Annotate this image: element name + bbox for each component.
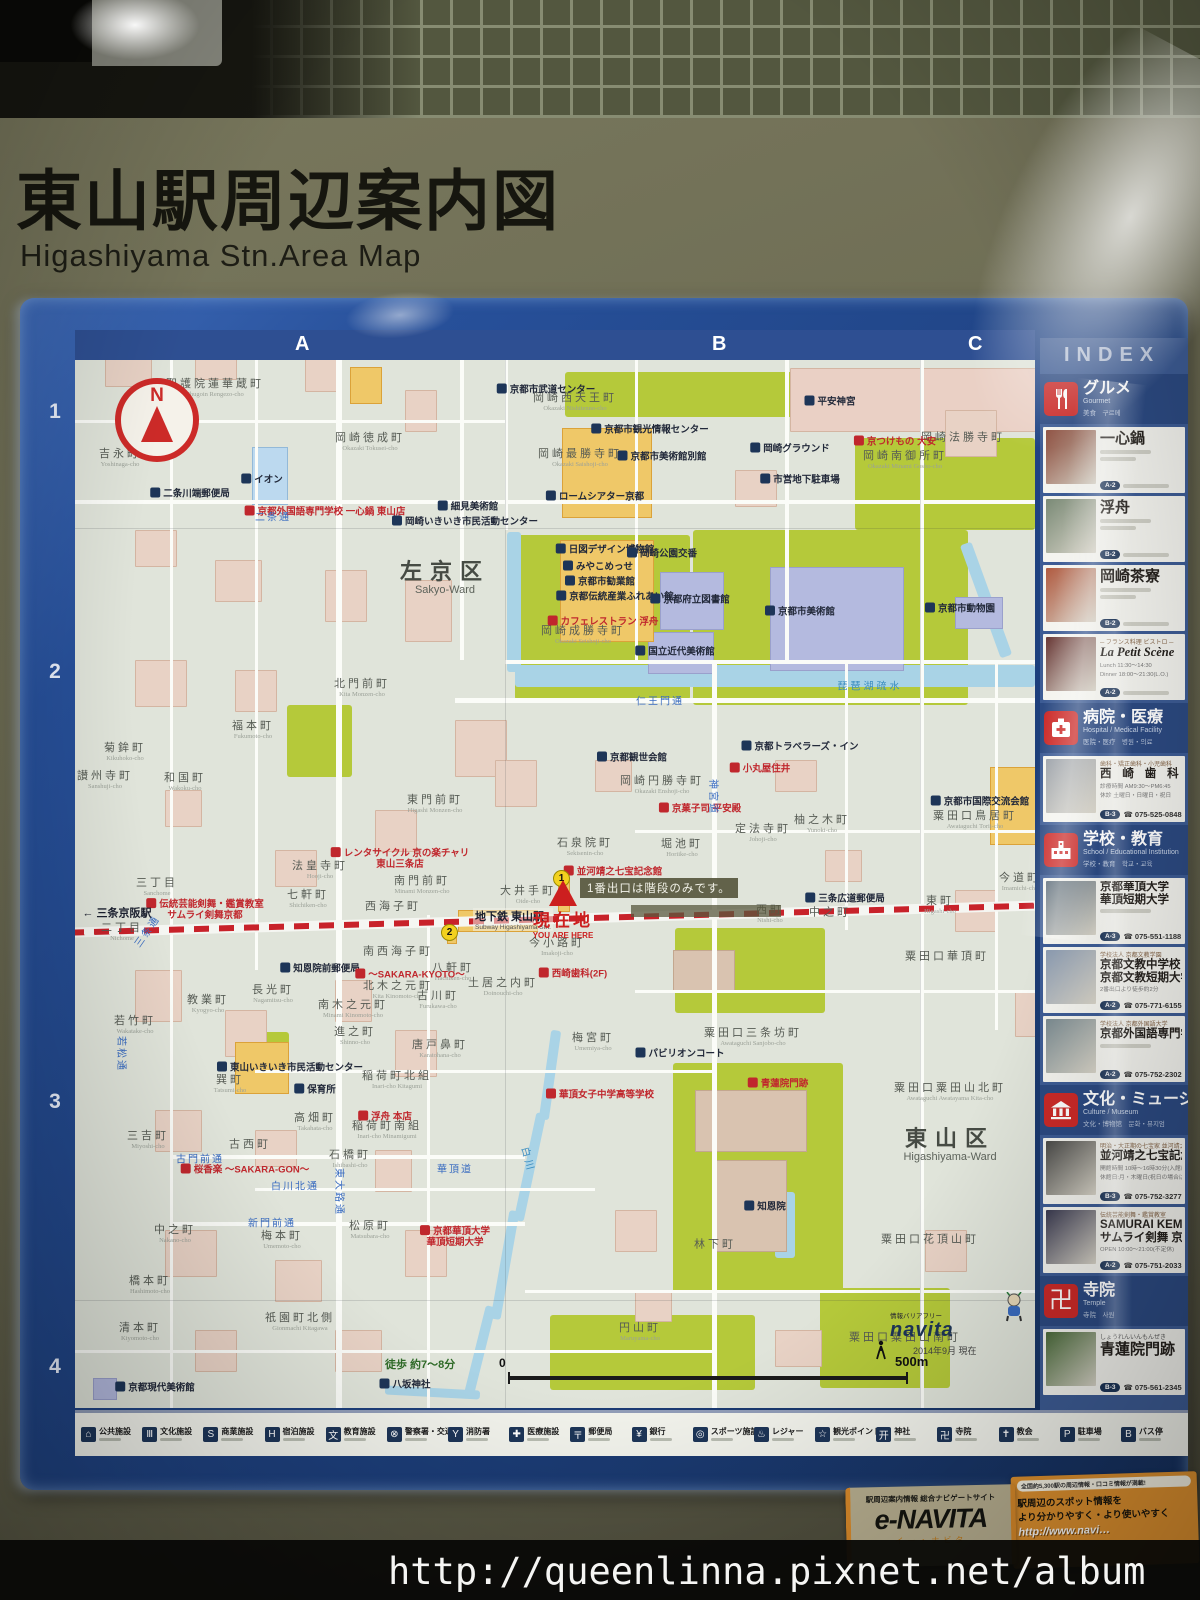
ad-photo [1046,759,1096,813]
town-label: 石泉院町Sekisenin-cho [557,837,613,857]
poi-marker-icon [805,893,815,903]
ad-detail-line: Lunch 11:30〜14:30 [1100,660,1182,669]
pedestrian-icon [875,1340,887,1365]
ad-card: 岡崎茶寮B-2 [1043,565,1185,631]
blurred-text-bar [1100,519,1151,523]
town-label: 中之町 [809,907,851,920]
poi-marker-icon [556,544,566,554]
poi-label: 三条広道郵便局 [805,893,885,906]
legend-item-lodging: H宿泊施設 [265,1427,326,1442]
legend-item-commercial-facility: S商業施設 [203,1427,264,1442]
poi-marker-icon [563,561,573,571]
town-label: 土居之内町Doinouchi-cho [468,977,538,997]
poi-label: 保育所 [294,1084,336,1097]
ad-phone: ☎ 075-771-6155 [1123,1001,1181,1010]
poi-marker-icon [294,1084,304,1094]
town-label: 古西町 [229,1139,271,1152]
lodging-icon: H [265,1427,280,1442]
town-label: 長光町Nagamitsu-cho [252,984,294,1004]
town-label: 今道町Imamichi-cho [999,872,1035,892]
blurred-text-bar [1100,595,1136,599]
watermark-band: http://queenlinna.pixnet.net/album [0,1540,1200,1600]
ad-title: 並河靖之七宝記念館 [1100,1150,1182,1163]
page-title-en: Higashiyama Stn.Area Map [20,238,421,274]
ad-label: 伝統芸能剣舞・鑑賞教室サムライ剣舞京都 [146,898,264,922]
ad-top-note: 学校法人 京都文教学園 [1100,950,1182,959]
ad-photo [1046,1141,1096,1195]
poi-label: パビリオンコート [635,1048,724,1061]
public-facility-icon: ⌂ [81,1427,96,1442]
town-label: 粟田口花頂山町 [881,1234,979,1247]
ad-label: 浮舟 本店 [358,1111,412,1124]
town-label: 清本町Kiyomoto-cho [119,1322,161,1342]
poi-label: 八坂神社 [379,1379,430,1392]
poi-label: 京都市美術館 [765,606,835,619]
street [505,660,1035,664]
ad-photo [1046,430,1096,484]
poi-marker-icon [744,1201,754,1211]
watermark-url: http://queenlinna.pixnet.net/album [388,1550,1145,1593]
street [460,330,464,660]
legend-item-sports-facility: ◎スポーツ施設 [693,1427,754,1442]
ad-photo [1046,1210,1096,1264]
town-label: 東町Higashi-cho [924,895,956,915]
grid-ref-badge: A-2 [1100,1001,1120,1010]
legend-label: 観光ポイント [833,1428,876,1437]
legend-label: 銀行 [650,1428,672,1437]
poi-marker-icon [556,591,566,601]
road-label: 華頂道 [437,1164,473,1176]
grid-line [75,1300,1035,1301]
water-label: 琵琶湖疏水 [838,681,903,693]
blurred-text-bar [1100,526,1136,530]
page-title: 東山駅周辺案内図 [16,148,560,244]
ad-photo [1046,499,1096,553]
compass-north-icon: N [115,378,199,462]
poi-marker-icon [635,646,645,656]
legend-label: 寺院 [955,1428,977,1437]
fork-knife-icon [1044,382,1078,416]
legend-label: 宿泊施設 [283,1428,315,1437]
grid-ref-badge: A-2 [1100,688,1120,697]
street [525,1290,1035,1293]
scale-start: 0 [499,1356,506,1370]
town-label: 梅本町Umemoto-cho [261,1230,303,1250]
town-label: 柚之木町Yunoki-cho [794,814,850,834]
ad-marker-icon [331,847,341,857]
town-label: 林下町 [694,1239,736,1252]
grid-ref-badge: B-2 [1100,550,1120,559]
legend-label: 医療施設 [527,1428,559,1437]
bld-area [275,1260,322,1302]
legend-item-leisure: ♨レジャー [754,1427,815,1442]
poi-label: 京都現代美術館 [115,1382,195,1395]
section-title: 学校・教育 [1083,832,1179,849]
poi-label: みやこめっせ [563,561,633,574]
poi-label: 市営地下駐車場 [760,474,840,487]
poi-label: 東山いきいき市民活動センター [217,1062,363,1075]
poi-label: 岡崎いきいき市民活動センター [392,516,538,529]
post-office-icon: 〒 [570,1427,585,1442]
poi-marker-icon [741,741,751,751]
town-label: 石橋町Ishibashi-cho [329,1149,371,1169]
ad-title: 青蓮院門跡 [1100,1341,1182,1358]
ad-phone: ☎ 075-525-0848 [1123,810,1181,819]
poi-label: 京都市美術館別館 [617,451,706,464]
poi-marker-icon [438,501,448,511]
legend-label: 警察署・交通 [405,1428,448,1437]
section-subtitle: 美食 구르메 [1083,407,1131,417]
bld-area [635,1290,672,1322]
town-label: 菊鉾町Kikuhoko-cho [104,742,146,762]
legend-item-post-office: 〒郵便局 [570,1427,631,1442]
water-area [539,1030,561,1121]
temple-icon: 卍 [937,1427,952,1442]
sticker-badge: 全国約5,300駅の周辺情報・口コミ情報が満載! [1017,1475,1191,1491]
town-label: 三丁目Sanchome [136,877,178,897]
poi-marker-icon [765,606,775,616]
grid-row-3: 3 [42,1090,68,1114]
legend-item-bus-stop: Bバス停 [1121,1427,1182,1442]
bld-area [375,810,417,852]
legend-label: 消防署 [466,1428,490,1437]
town-label: 南木之元町Minami Kinomoto-cho [318,999,388,1019]
index-section-temple: 卍寺院Temple寺院 사원 [1040,1276,1188,1326]
road-label: 若松通 [114,1036,126,1072]
blurred-text-bar [1100,1044,1151,1048]
ad-top-note: 学校法人 京都外国語大学 [1100,1019,1182,1028]
ad-marker-icon [358,1111,368,1121]
poi-label: 京都府立図書館 [650,594,730,607]
sightseeing-point-icon: ☆ [815,1427,830,1442]
lav-area [770,567,904,671]
bld-area [1015,990,1035,1037]
town-label: 粟田口鳥居町Awataguchi Torii-cho [933,810,1017,830]
navita-mascot-icon [1003,1292,1025,1327]
you-are-here-triangle [549,880,577,906]
legend-label: 神社 [894,1428,916,1437]
poi-label: 京都市観光情報センター [591,424,709,437]
poi-label: 京都観世会館 [597,752,667,765]
town-label: 堀池町Horiike-cho [661,838,703,858]
ad-card: しょうれんいんもんぜき青蓮院門跡B-3☎ 075-561-2345 [1043,1329,1185,1395]
legend-item-bank: ¥銀行 [632,1427,693,1442]
legend-label: バス停 [1139,1428,1163,1437]
fire-station-icon: Y [448,1427,463,1442]
road-label: 二条通 [255,512,291,524]
poi-marker-icon [591,424,601,434]
poi-marker-icon [760,474,770,484]
town-label: 若竹町Wakatake-cho [114,1015,156,1035]
grid-ref-badge: A-2 [1100,481,1120,490]
town-label: 粟田口華頂町 [905,951,989,964]
town-label: 橋本町Hashimoto-cho [129,1275,171,1295]
commercial-facility-icon: S [203,1427,218,1442]
grid-col-A: A [295,333,309,356]
ad-label: 並河靖之七宝記念館 [564,866,663,879]
ylw-area [562,428,652,518]
ad-top-note: 歯科・矯正歯科・小児歯科 [1100,759,1182,768]
grid-row-4: 4 [42,1355,68,1379]
ad-label: 小丸屋住井 [730,763,791,776]
poi-marker-icon [925,603,935,613]
legend-item-cultural-facility: Ⅲ文化施設 [142,1427,203,1442]
ad-marker-icon [355,969,365,979]
poi-label: 京都トラベラーズ・イン [741,741,858,754]
bank-icon: ¥ [632,1427,647,1442]
street [255,330,258,970]
ad-detail-line: OPEN 10:00〜21:00(不定休) [1100,1244,1182,1253]
grid-ref-badge: A-3 [1100,932,1120,941]
poi-marker-icon [750,443,760,453]
ad-title: La Petit Scène [1100,646,1182,660]
legend-label: スポーツ施設 [711,1428,754,1437]
town-label: 福本町Fukumoto-cho [232,720,274,740]
sports-facility-icon: ◎ [693,1427,708,1442]
ad-card: 明治・大正期の七宝家 並河靖之の旧邸並河靖之七宝記念館開館時間 10時〜16時3… [1043,1138,1185,1204]
ad-label: レンタサイクル 京の楽チャリ東山三条店 [331,847,470,871]
ceiling-panel [92,0,222,66]
medical-facility-icon: ✚ [509,1427,524,1442]
town-label: 進之町Shinno-cho [334,1026,376,1046]
ad-card: ─ フランス料理 ビストロ ─La Petit ScèneLunch 11:30… [1043,634,1185,700]
town-label: 岡崎最勝寺町Okazaki Saishoji-cho [538,448,622,468]
ad-photo [1046,1332,1096,1386]
ad-phone: ☎ 075-752-3277 [1123,1192,1181,1201]
ad-title: 一心鍋 [1100,430,1182,447]
town-label: 梅宮町Umemiya-cho [572,1032,614,1052]
blurred-text-bar [1100,909,1151,913]
ad-card: 浮舟B-2 [1043,496,1185,562]
poi-marker-icon [217,1062,227,1072]
ad-card: 伝統芸能剣舞・鑑賞教室SAMURAI KEMBU KYOTOサムライ剣舞 京都O… [1043,1207,1185,1273]
ad-phone: ☎ 075-752-2302 [1123,1070,1181,1079]
legend-item-medical-facility: ✚医療施設 [509,1427,570,1442]
town-label: 岡崎南御所町Okazaki Minami Gosho-cho [863,450,947,470]
town-label: 和国町Wakoku-cho [164,772,206,792]
section-title-en: Culture / Museum [1083,1109,1184,1117]
ad-photo [1046,1019,1096,1073]
road-label: 仁王門通 [636,696,684,708]
grid-line [75,528,1035,529]
town-label: 定法寺町Johoji-cho [735,823,791,843]
grid-line [505,330,506,1408]
ad-marker-icon [748,1078,758,1088]
grid-ref-badge: B-3 [1100,1192,1120,1201]
ad-phone: ☎ 075-561-2345 [1123,1383,1181,1392]
street [635,990,1035,993]
legend-label: 郵便局 [588,1428,612,1437]
town-label: 粟田口粟田山北町Awataguchi Awatayama Kita-cho [894,1082,1006,1102]
section-subtitle: 寺院 사원 [1083,1309,1115,1319]
bld2-area [673,950,735,992]
town-label: 七軒町Shichiken-cho [287,889,329,909]
exit-notice: 1番出口は階段のみです。 [580,878,738,898]
town-label: 松原町Matsubara-cho [349,1220,391,1240]
ad-marker-icon [854,436,864,446]
ad-title: SAMURAI KEMBU KYOTOサムライ剣舞 京都 [1100,1219,1182,1244]
station-map-photo: 東山駅周辺案内図 Higashiyama Stn.Area Map 1234 A… [0,0,1200,1600]
park-area [287,705,352,777]
ad-title: 西 崎 歯 科 [1100,768,1182,781]
church-icon: ✝ [999,1427,1014,1442]
town-label: 祇園町北側Gionmachi Kitagawa [265,1312,335,1332]
poi-marker-icon [150,488,160,498]
grid-ref-badge: B-2 [1100,619,1120,628]
grid-ref-badge: B-3 [1100,1383,1120,1392]
poi-marker-icon [565,576,575,586]
navita-logo: 情報バリアフリー navita [890,1310,954,1341]
legend-item-police-traffic: ⊗警察署・交通 [387,1427,448,1442]
ad-title: 岡崎茶寮 [1100,568,1182,585]
ad-detail-line: 診療時間 AM9:30〜PM6:45 [1100,781,1182,790]
lav-area [93,1378,117,1400]
grid-ref-badge: A-2 [1100,1261,1120,1270]
street [995,660,998,1030]
ad-card: 歯科・矯正歯科・小児歯科西 崎 歯 科診療時間 AM9:30〜PM6:45休診 … [1043,756,1185,822]
poi-marker-icon [650,594,660,604]
blurred-text-bar [1100,450,1151,454]
ward-label: 東山区Higashiyama-Ward [903,1126,996,1164]
town-label: 北門前町Kita Monzen-cho [334,678,390,698]
ad-title: 京都文教中学校・高等学校京都文教短期大学付属小学校 [1100,959,1182,984]
ad-detail-line: 開館時間 10時〜16時30分(入館は16時まで) [1100,1163,1182,1172]
museum-icon [1044,1093,1078,1127]
ad-top-note: 伝統芸能剣舞・鑑賞教室 [1100,1210,1182,1219]
section-title: グルメ [1083,381,1131,398]
poi-marker-icon [804,396,814,406]
manji-icon: 卍 [1044,1284,1078,1318]
poi-label: 岡崎グラウンド [750,443,830,456]
police-traffic-icon: ⊗ [387,1427,402,1442]
index-section-hospital: 病院・医療Hospital / Medical Facility医院・医疗 병원… [1040,703,1188,753]
map-signboard: 1234 ABC N 1番出口は階段のみです。 地下鉄 東山駅 Subway H… [20,298,1188,1490]
town-label: 三吉町Miyoshi-cho [127,1130,169,1150]
poi-marker-icon [546,491,556,501]
ad-card: 学校法人 京都文教学園京都文教中学校・高等学校京都文教短期大学付属小学校2番出口… [1043,947,1185,1013]
legend-label: 公共施設 [99,1428,131,1437]
ad-marker-icon [546,1089,556,1099]
town-label: 粟田口三条坊町Awataguchi Sanjobo-cho [704,1027,802,1047]
poi-label: 知恩院 [744,1201,786,1214]
poi-marker-icon [617,451,627,461]
section-title-en: School / Educational Institution [1083,849,1179,857]
legend-item-temple: 卍寺院 [937,1427,998,1442]
poi-label: 京都市国際交流会館 [931,796,1030,809]
bld-area [135,660,187,707]
legend-item-public-facility: ⌂公共施設 [81,1427,142,1442]
poi-marker-icon [280,963,290,973]
poi-marker-icon [497,384,507,394]
ad-card: 学校法人 京都外国語大学京都外国語専門学校A-2☎ 075-752-2302 [1043,1016,1185,1082]
index-section-school: 学校・教育School / Educational Institution学校・… [1040,825,1188,875]
asof-date: 2014年9月 現在 [913,1344,977,1357]
road-label: 新門前通 [248,1218,296,1230]
ad-photo [1046,568,1096,622]
ad-marker-icon [730,763,740,773]
ad-marker-icon [420,1225,430,1235]
section-title-en: Temple [1083,1300,1115,1308]
school-icon [1044,833,1078,867]
ad-top-note: 明治・大正期の七宝家 並河靖之の旧邸 [1100,1141,1182,1150]
ad-label: 京つけもの 大安 [854,436,936,449]
ad-title: 京都華頂大学華頂短期大学 [1100,881,1182,906]
road-label: 神宮道 [706,779,718,815]
grid-col-C: C [968,333,982,356]
ad-label: 西崎歯科(2F) [539,968,607,981]
ad-marker-icon [245,506,255,516]
street [455,698,1035,703]
bld-area [775,1330,822,1367]
poi-label: 京都市勧業館 [565,576,635,589]
legend-bar: ⌂公共施設Ⅲ文化施設S商業施設H宿泊施設文教育施設⊗警察署・交通Y消防署✚医療施… [75,1410,1188,1456]
bld-area [825,850,862,882]
town-label: 高畑町Takahata-cho [294,1112,336,1132]
town-label: 東門前町Higashi Monzen-cho [407,794,463,814]
ward-label: 左京区Sakyo-Ward [400,559,490,597]
ad-marker-icon [659,803,669,813]
station-direction-label: ← 三条京阪駅 [82,908,151,921]
legend-item-sightseeing-point: ☆観光ポイント [815,1427,876,1442]
town-label: 稲荷町北組Inari-cho Kitagumi [362,1070,432,1090]
grid-column-bar [75,330,1035,360]
ad-label: 京都華頂大学華頂短期大学 [420,1225,490,1249]
bus-stop-icon: B [1121,1427,1136,1442]
notice-blur-bar [631,905,781,917]
legend-label: レジャー [772,1428,804,1437]
ad-marker-icon [548,616,558,626]
legend-label: 駐車場 [1078,1428,1102,1437]
section-subtitle: 文化・博物馆 문화・뮤지엄 [1083,1118,1184,1128]
ceiling-fixture [0,0,92,62]
legend-item-shrine: 开神社 [876,1427,937,1442]
ylw-area [350,367,382,404]
ad-card: 一心鍋A-2 [1043,427,1185,493]
poi-label: 京都市武道センター [497,384,596,397]
bld-area [325,570,367,622]
legend-item-parking: P駐車場 [1060,1427,1121,1442]
bld-area [615,1210,657,1252]
parking-icon: P [1060,1427,1075,1442]
legend-item-education-facility: 文教育施設 [326,1427,387,1442]
section-title-en: Gourmet [1083,398,1131,406]
poi-marker-icon [931,796,941,806]
grid-col-B: B [712,333,726,356]
section-title: 寺院 [1083,1283,1115,1300]
ad-phone: ☎ 075-551-1188 [1123,932,1181,941]
blurred-text-bar [1123,691,1168,695]
town-label: 岡崎徳成町Okazaki Tokusei-cho [335,432,405,452]
legend-item-fire-station: Y消防署 [448,1427,509,1442]
poi-marker-icon [115,1382,125,1392]
legend-label: 教会 [1017,1428,1039,1437]
town-label: 古川町Furukawa-cho [417,990,459,1010]
town-label: 南西海子町 [363,946,433,959]
ad-photo [1046,950,1096,1004]
grid-ref-badge: B-3 [1100,810,1120,819]
sticker-url: http://www.navi… [1018,1521,1192,1538]
town-label: 讃州寺町Sanshuji-cho [77,770,133,790]
town-label: 唐戸鼻町Karatohana-cho [412,1039,468,1059]
town-label: 円山町Maruyama-cho [619,1322,661,1342]
ad-label: 〜SAKARA-KYOTO〜 [355,969,464,982]
poi-label: 岡崎公園交番 [627,548,697,561]
bld-area [495,760,537,807]
enavita-brand: e-NAVITA [851,1502,1012,1536]
water-area [507,532,521,672]
town-label: 中之町Nakano-cho [154,1224,196,1244]
ad-detail-line: 休診 土曜日・日曜日・祝日 [1100,790,1182,799]
